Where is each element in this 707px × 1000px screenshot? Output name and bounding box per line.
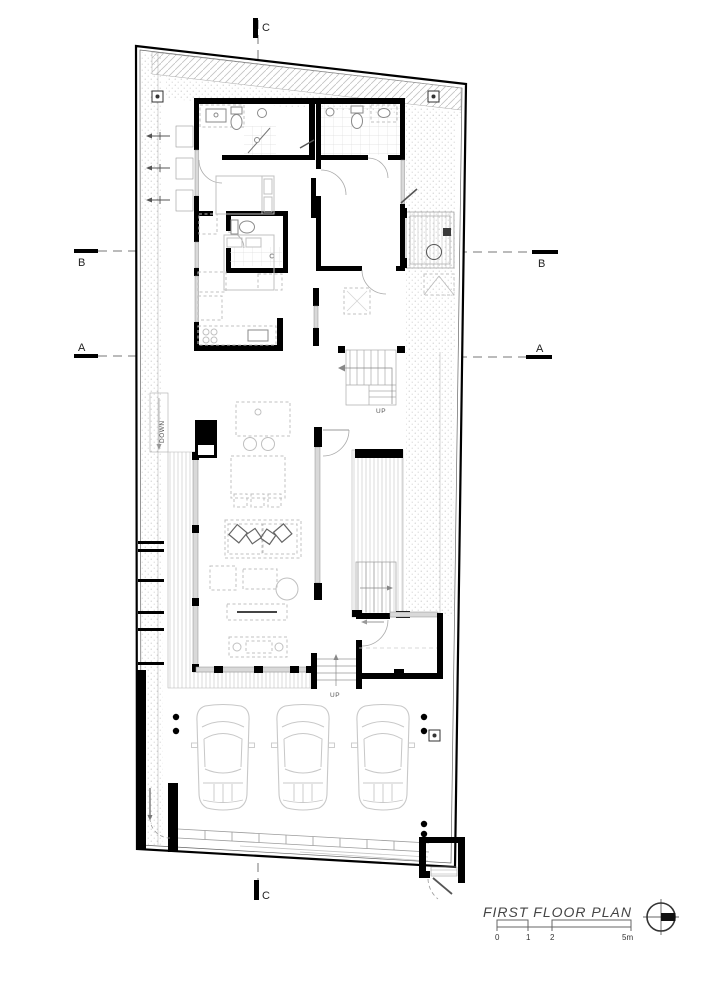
section-label-a-right: A	[536, 343, 544, 355]
toilet-icon	[240, 221, 255, 233]
bathroom-2	[321, 104, 400, 155]
floor-plan-canvas: C C B B A A	[0, 0, 707, 1000]
shower-icon	[326, 108, 334, 116]
section-label-a-left: A	[78, 342, 86, 354]
sink-icon	[378, 109, 390, 118]
plan-title: FIRST FLOOR PLAN	[483, 904, 632, 920]
section-label-b-right: B	[538, 258, 545, 270]
scale-tick-1: 1	[526, 933, 531, 942]
section-label-c-bottom: C	[262, 890, 270, 902]
stair-up-label: UP	[376, 408, 386, 415]
terrace-right	[352, 449, 410, 618]
garage-up-label: UP	[330, 692, 340, 699]
bollard-dot	[421, 831, 427, 837]
drain-marker	[428, 91, 439, 102]
bollard-dot	[173, 728, 179, 734]
bollard-dot	[173, 714, 179, 720]
toilet-icon	[352, 114, 363, 129]
section-label-b-left: B	[78, 257, 85, 269]
ramp-down-label: DOWN	[159, 420, 166, 443]
bollard-dot	[421, 821, 427, 827]
section-label-c-top: C	[262, 22, 270, 34]
bollard-dot	[421, 714, 427, 720]
sink-icon	[248, 330, 268, 341]
shower-icon	[255, 138, 260, 143]
drain-marker	[429, 730, 440, 741]
bollard-dot	[421, 728, 427, 734]
scale-tick-2: 2	[550, 933, 555, 942]
drain-marker	[152, 91, 163, 102]
scale-tick-5m: 5m	[622, 933, 633, 942]
floor-plan-sheet: C C B B A A	[0, 0, 707, 1000]
scale-tick-0: 0	[495, 933, 500, 942]
